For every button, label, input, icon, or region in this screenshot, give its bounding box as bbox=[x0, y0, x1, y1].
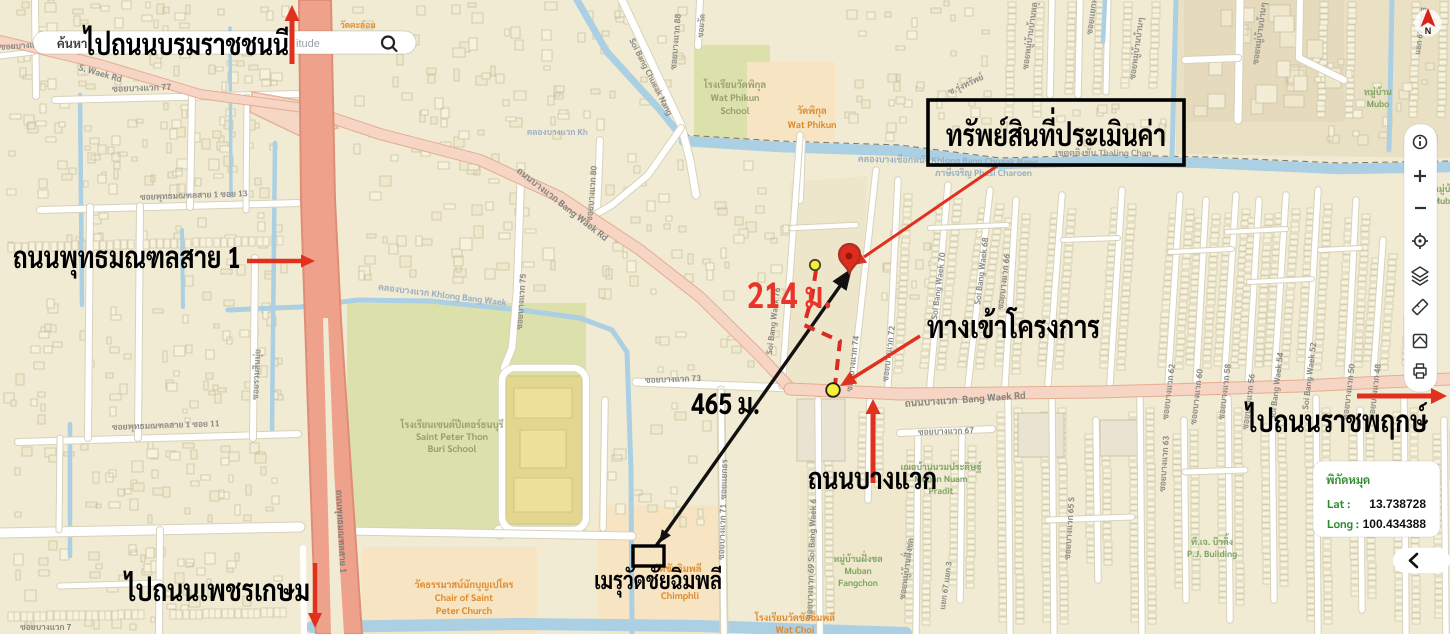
svg-text:13.738728: 13.738728 bbox=[1369, 497, 1426, 511]
svg-text:itude: itude bbox=[296, 38, 320, 50]
svg-text:N: N bbox=[1425, 26, 1432, 36]
svg-text:100.434388: 100.434388 bbox=[1363, 517, 1427, 531]
